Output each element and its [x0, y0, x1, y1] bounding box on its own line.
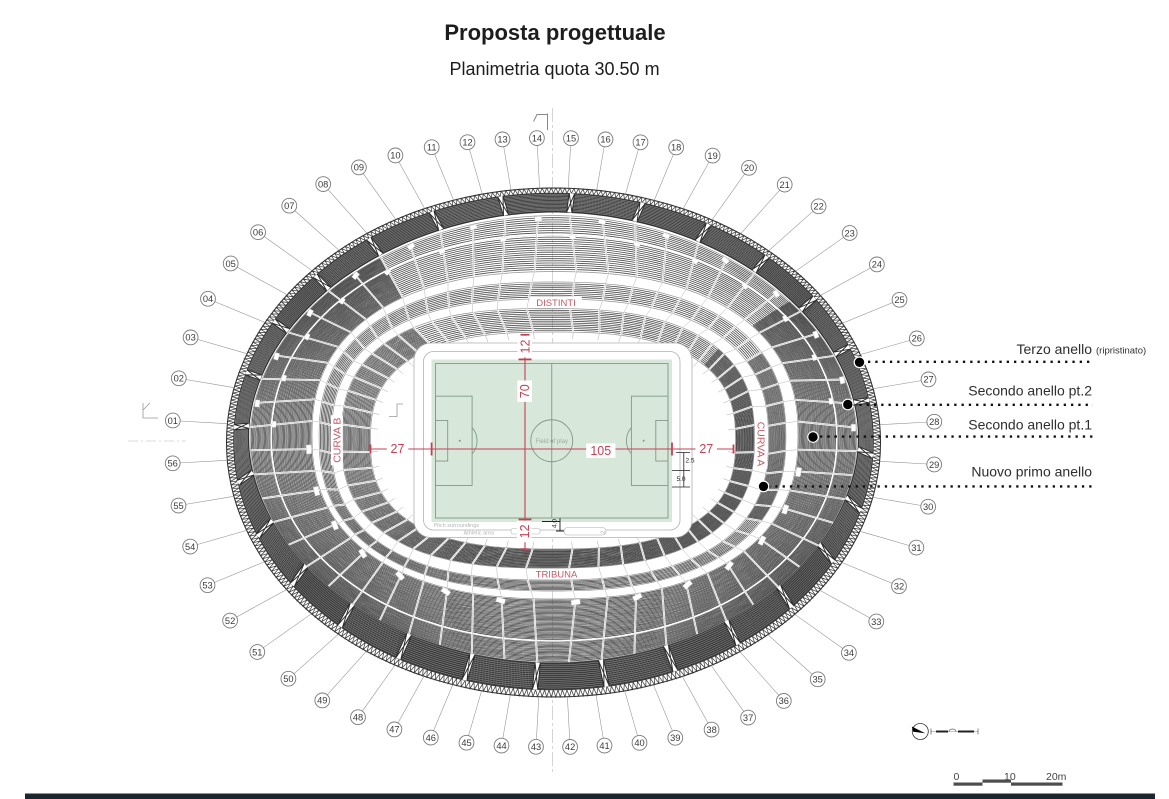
svg-text:14: 14	[532, 133, 542, 143]
svg-text:29: 29	[929, 460, 939, 470]
svg-text:41: 41	[599, 741, 609, 751]
svg-text:02: 02	[174, 374, 184, 384]
svg-text:50: 50	[283, 674, 293, 684]
svg-text:46: 46	[426, 733, 436, 743]
svg-text:39: 39	[670, 733, 680, 743]
svg-text:53: 53	[202, 581, 212, 591]
svg-text:4.0: 4.0	[552, 519, 559, 528]
svg-text:Terzo anello: Terzo anello	[1017, 341, 1093, 357]
svg-text:20: 20	[744, 163, 754, 173]
svg-text:Secondo anello pt.2: Secondo anello pt.2	[968, 383, 1092, 399]
svg-text:27: 27	[391, 442, 405, 456]
svg-text:19: 19	[707, 151, 717, 161]
svg-text:44: 44	[496, 741, 506, 751]
svg-text:24: 24	[872, 260, 882, 270]
svg-text:70: 70	[518, 384, 532, 398]
svg-text:45: 45	[461, 738, 471, 748]
svg-text:09: 09	[354, 163, 364, 173]
svg-text:Pitch surroundings: Pitch surroundings	[434, 523, 480, 529]
svg-text:20m: 20m	[1046, 771, 1067, 783]
svg-text:TRIBUNA: TRIBUNA	[536, 569, 578, 580]
svg-text:47: 47	[389, 725, 399, 735]
svg-text:2.5: 2.5	[686, 458, 695, 465]
svg-text:40: 40	[634, 738, 644, 748]
svg-text:37: 37	[743, 713, 753, 723]
svg-text:Proposta progettuale: Proposta progettuale	[444, 20, 665, 45]
svg-text:30: 30	[923, 502, 933, 512]
svg-text:12: 12	[518, 524, 532, 538]
svg-text:CURVA A: CURVA A	[755, 422, 767, 467]
svg-text:55: 55	[173, 501, 183, 511]
svg-text:52: 52	[225, 616, 235, 626]
svg-text:38: 38	[706, 725, 716, 735]
svg-text:Nuovo primo anello: Nuovo primo anello	[971, 464, 1092, 480]
svg-text:06: 06	[253, 228, 263, 238]
svg-text:26: 26	[912, 334, 922, 344]
svg-text:15: 15	[566, 134, 576, 144]
svg-text:16: 16	[600, 135, 610, 145]
svg-text:25: 25	[894, 295, 904, 305]
svg-text:11: 11	[427, 143, 437, 153]
svg-text:42: 42	[565, 742, 575, 752]
svg-text:21: 21	[780, 180, 790, 190]
svg-text:08: 08	[318, 179, 328, 189]
svg-text:33: 33	[871, 617, 881, 627]
svg-text:12: 12	[518, 340, 532, 354]
svg-text:23: 23	[845, 228, 855, 238]
svg-text:28: 28	[929, 417, 939, 427]
svg-text:Secondo anello pt.1: Secondo anello pt.1	[968, 417, 1092, 433]
svg-text:17: 17	[635, 138, 645, 148]
svg-text:18: 18	[671, 143, 681, 153]
svg-text:31: 31	[911, 543, 921, 553]
svg-text:34: 34	[844, 648, 854, 658]
svg-text:10: 10	[390, 151, 400, 161]
svg-text:04: 04	[203, 294, 213, 304]
svg-text:Planimetria quota 30.50 m: Planimetria quota 30.50 m	[449, 59, 659, 79]
svg-text:43: 43	[531, 742, 541, 752]
svg-text:49: 49	[317, 696, 327, 706]
svg-text:22: 22	[813, 202, 823, 212]
svg-text:51: 51	[252, 647, 262, 657]
svg-text:03: 03	[185, 333, 195, 343]
svg-text:Athletic area: Athletic area	[464, 531, 496, 537]
svg-text:Field of play: Field of play	[536, 439, 568, 445]
svg-text:CURVA B: CURVA B	[332, 418, 344, 463]
svg-text:32: 32	[894, 582, 904, 592]
svg-text:07: 07	[284, 201, 294, 211]
svg-text:10: 10	[1004, 771, 1016, 783]
svg-text:05: 05	[226, 259, 236, 269]
svg-text:27: 27	[923, 375, 933, 385]
svg-text:36: 36	[779, 696, 789, 706]
svg-text:48: 48	[353, 713, 363, 723]
svg-text:54: 54	[185, 542, 195, 552]
svg-text:(ripristinato): (ripristinato)	[1096, 346, 1146, 357]
svg-text:5.0: 5.0	[677, 476, 686, 483]
svg-text:12: 12	[462, 138, 472, 148]
svg-text:0: 0	[954, 771, 960, 783]
svg-text:DISTINTI: DISTINTI	[536, 298, 576, 309]
svg-text:35: 35	[813, 675, 823, 685]
svg-text:13: 13	[497, 135, 507, 145]
svg-text:01: 01	[168, 416, 178, 426]
svg-text:56: 56	[168, 459, 178, 469]
svg-text:27: 27	[699, 442, 713, 456]
svg-text:105: 105	[590, 444, 611, 458]
